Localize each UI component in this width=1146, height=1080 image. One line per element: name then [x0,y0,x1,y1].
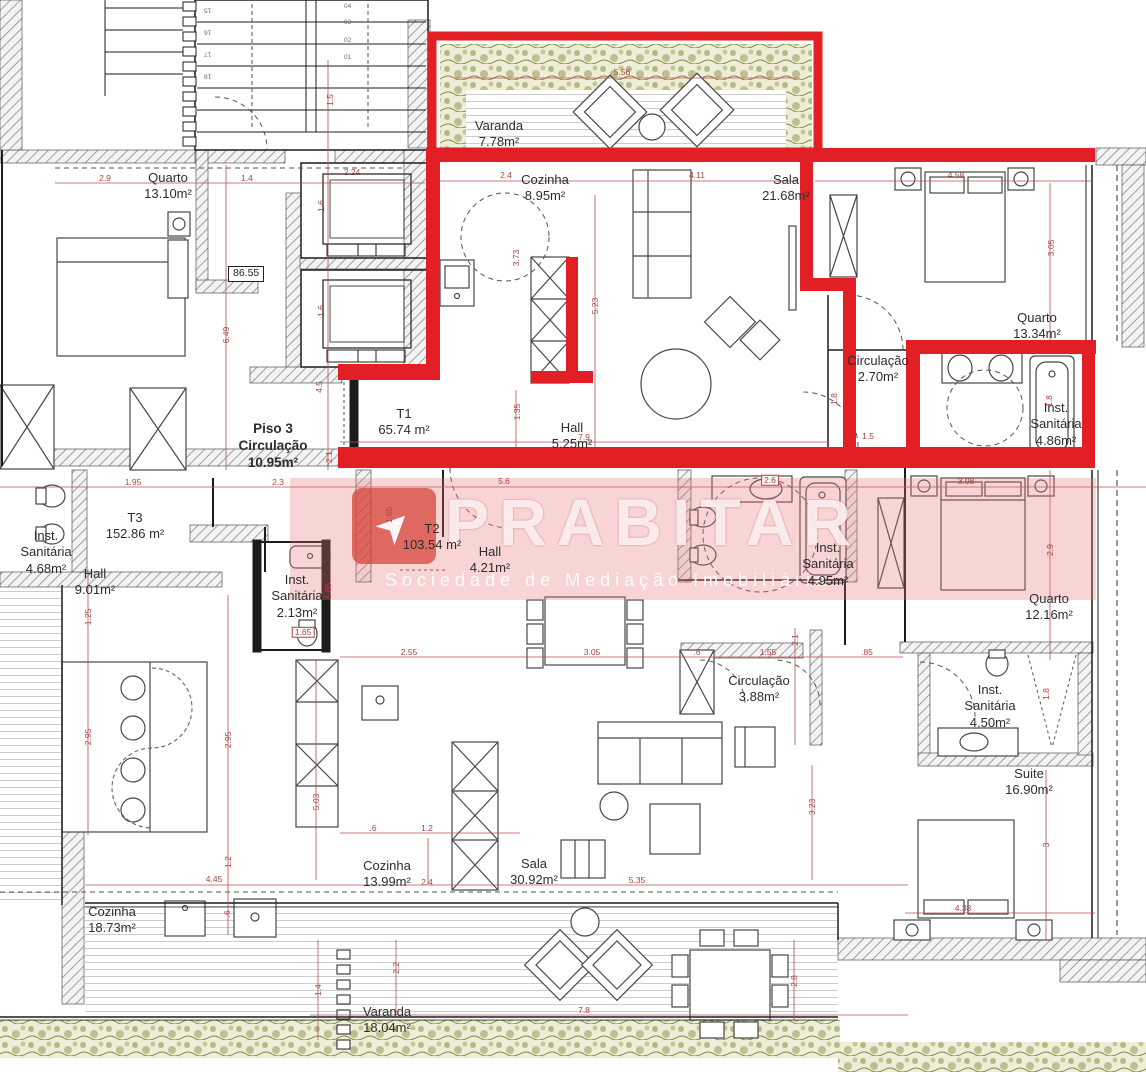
room-label: Inst.Sanitária4.86m² [1030,400,1081,449]
dimension-label: 2.9 [1046,544,1055,556]
room-label: Quarto13.34m² [1013,310,1061,343]
stair-step-number: 17 [204,50,211,57]
dimension-label: 3.23 [808,799,817,816]
dimension-label: 2.6 [761,475,779,486]
dimension-label: 2.9 [99,174,111,183]
dimension-label: 2.24 [344,168,361,177]
room-label: T3152.86 m² [106,510,165,543]
dimension-label: 1.8 [1045,395,1054,407]
dimension-label: 5.35 [629,876,646,885]
stair-step-number: 01 [344,55,351,62]
dimension-label: 1.2 [421,824,433,833]
room-label: Varanda18.04m² [363,1004,411,1037]
dimension-label: 4.58 [948,171,965,180]
dimension-label: .6 [693,648,700,657]
dimension-label: 5.23 [591,298,600,315]
dimension-label: 2.95 [84,729,93,746]
dimension-label: 2.2 [392,962,401,974]
dimension-label: 3.98 [958,477,975,486]
room-label: Cozinha18.73m² [88,904,136,937]
dimension-label: 3 [1042,843,1051,848]
dimension-label: 1.35 [513,404,522,421]
dimension-label: 2.1 [325,451,334,463]
dimension-label: 1.55 [760,648,777,657]
stair-step-number: 18 [204,72,211,79]
stair-step-number: 03 [344,20,351,27]
dimension-label: 1.6 [317,305,326,317]
dimension-label: 3.05 [1047,240,1056,257]
room-label: Circulação3.88m² [728,673,789,706]
room-label: T165.74 m² [378,406,429,439]
dimension-label: 1.95 [125,478,142,487]
dimension-label: 7.9 [578,433,590,442]
dimension-label: 5.6 [498,477,510,486]
room-label: Sala30.92m² [510,856,558,889]
dimension-label: 4.38 [955,904,972,913]
dimension-label: .6 [369,824,376,833]
room-label: Sala21.68m² [762,172,810,205]
level-marker: 86.55 [228,266,264,282]
dimension-label: 1.2 [224,856,233,868]
room-label: Inst.Sanitária2.13m² [271,572,322,621]
dimension-label: 1.5 [862,432,874,441]
watermark-subtitle: Sociedade de Mediação Imobiliária [385,570,830,591]
dimension-label: .6 [223,910,232,917]
floor-plan: ➤ PRABITAR Sociedade de Mediação Imobili… [0,0,1146,1080]
room-label: Hall9.01m² [75,566,115,599]
dimension-label: 2.1 [791,634,800,646]
dimension-label: 6.49 [222,327,231,344]
dimension-label: 2.95 [224,732,233,749]
dimension-label: 1.25 [84,609,93,626]
stair-step-number: 04 [344,4,351,11]
dimension-label: 1.8 [830,393,839,405]
stair-step-number: 16 [204,28,211,35]
room-label: Suite16.90m² [1005,766,1053,799]
room-label: Quarto13.10m² [144,170,192,203]
dimension-label: 2.4 [421,878,433,887]
room-label: T2103.54 m² [403,521,462,554]
dimension-label: 2.8 [790,975,799,987]
dimension-label: 7.8 [578,1006,590,1015]
stair-step-number: 02 [344,38,351,45]
dimension-label: 3.05 [584,648,601,657]
room-label: Inst.Sanitária4.95m² [802,540,853,589]
dimension-label: 1.5 [326,94,335,106]
dimension-label: 4.45 [206,875,223,884]
dimension-label: 2.55 [401,648,418,657]
room-label: Inst.Sanitária4.68m² [20,528,71,577]
room-label: Circulação2.70m² [847,353,908,386]
dimension-label: 1.85 [324,583,333,600]
dimension-label: 1.4 [314,984,323,996]
dimension-label: 1.65 [385,507,394,524]
stair-step-number: 15 [204,6,211,13]
room-label: Cozinha13.99m² [363,858,411,891]
dimension-label: 4.11 [689,171,705,180]
dimension-label: 1.65 [292,627,315,638]
room-label: Varanda7.78m² [475,118,523,151]
dimension-label: 5.56 [614,68,631,77]
room-label: Quarto12.16m² [1025,591,1073,624]
dimension-label: 2.4 [500,171,512,180]
dimension-label: 4.5 [315,381,324,393]
dimension-label: 5.03 [312,794,321,811]
room-label: Piso 3Circulação10.95m² [238,421,307,472]
room-label: Hall4.21m² [470,544,510,577]
dimension-label: 3.73 [512,250,521,267]
room-label: Cozinha8.95m² [521,172,569,205]
dimension-label: .85 [861,648,873,657]
room-label: Inst.Sanitária4.50m² [964,682,1015,731]
dimension-label: 1.4 [241,174,253,183]
dimension-label: 2.3 [272,478,284,487]
dimension-label: 1.8 [1042,688,1051,700]
dimension-label: 1.6 [317,200,326,212]
